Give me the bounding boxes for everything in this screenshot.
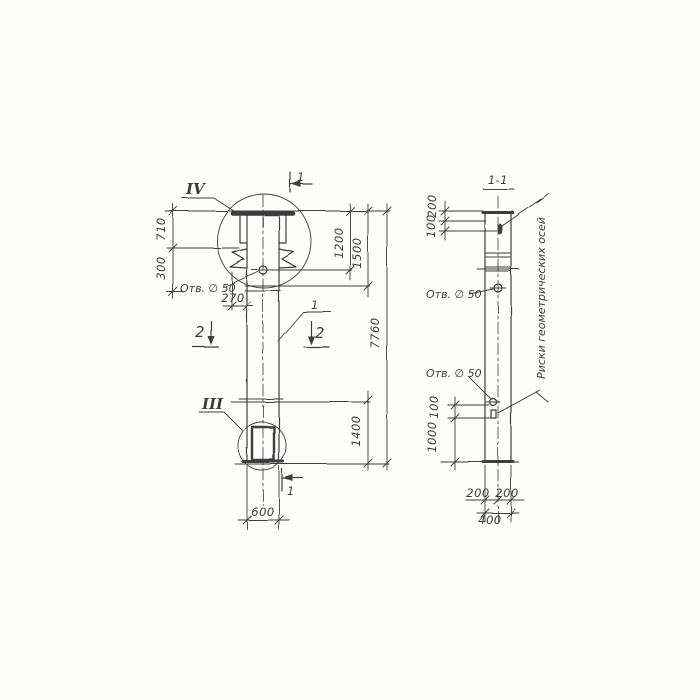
axes-note: Риски геометрических осей bbox=[535, 217, 548, 379]
dim-270-label: 270 bbox=[221, 291, 244, 305]
level-1400-line bbox=[231, 399, 370, 402]
dim-400-label: 400 bbox=[478, 513, 501, 527]
section1-top-label: 1 bbox=[297, 170, 305, 184]
elevation-view: IV III 1 1 2 2 1 Отв. ∅ 50 710 300 270 1… bbox=[154, 170, 391, 529]
detail-iv-leader bbox=[182, 198, 234, 211]
section2-left-arrow bbox=[208, 336, 215, 345]
section1-bottom-arrow bbox=[283, 475, 293, 482]
section-linework bbox=[439, 189, 549, 522]
dim-100-top-label: 100 bbox=[424, 214, 438, 237]
hole-lower-leader bbox=[469, 377, 491, 399]
detail-iii-label: III bbox=[201, 395, 224, 413]
axis-mark-top bbox=[498, 224, 503, 235]
dim-300-label: 300 bbox=[154, 256, 168, 279]
dim-200-bl-label: 200 bbox=[466, 486, 489, 500]
dim-1000-label: 1000 bbox=[425, 421, 439, 452]
axes-note-leader-bottom bbox=[498, 390, 548, 413]
pile-column-drawing: IV III 1 1 2 2 1 Отв. ∅ 50 710 300 270 1… bbox=[0, 0, 700, 700]
dim-1400-label: 1400 bbox=[349, 415, 363, 446]
section-view: 1-1 Отв. ∅ 50 Отв. ∅ 50 Риски геометриче… bbox=[424, 173, 549, 527]
dim-1500-label: 1500 bbox=[350, 237, 364, 268]
elevation-linework bbox=[165, 172, 391, 529]
hole-note-upper: Отв. ∅ 50 bbox=[426, 288, 482, 301]
item1-label: 1 bbox=[311, 298, 319, 312]
section2-right-arrow bbox=[308, 336, 315, 345]
corbel-break-left bbox=[230, 249, 247, 268]
dim-1200-label: 1200 bbox=[332, 227, 346, 258]
dim-200-100-top bbox=[439, 201, 497, 240]
detail-iii-leader bbox=[199, 412, 242, 430]
detail-iv-label: IV bbox=[185, 180, 206, 198]
section-title: 1-1 bbox=[488, 173, 508, 187]
section2-right-label: 2 bbox=[315, 324, 325, 342]
corbel-break-right bbox=[279, 249, 296, 268]
dim-200-top-label: 200 bbox=[425, 194, 439, 217]
hole-note-lower: Отв. ∅ 50 bbox=[426, 367, 482, 380]
dim-600-label: 600 bbox=[251, 505, 274, 519]
dim-100-mid-label: 100 bbox=[427, 395, 441, 418]
dim-7760-line bbox=[383, 204, 391, 470]
axis-mark-bottom bbox=[491, 410, 496, 418]
dim-200-br-label: 200 bbox=[495, 486, 518, 500]
dim-710-label: 710 bbox=[154, 217, 168, 240]
joint-line-upper bbox=[245, 286, 370, 291]
drawing-canvas: IV III 1 1 2 2 1 Отв. ∅ 50 710 300 270 1… bbox=[0, 0, 700, 700]
section2-left-label: 2 bbox=[195, 323, 205, 341]
section1-bottom-label: 1 bbox=[287, 484, 295, 498]
dim-7760-label: 7760 bbox=[368, 317, 382, 348]
